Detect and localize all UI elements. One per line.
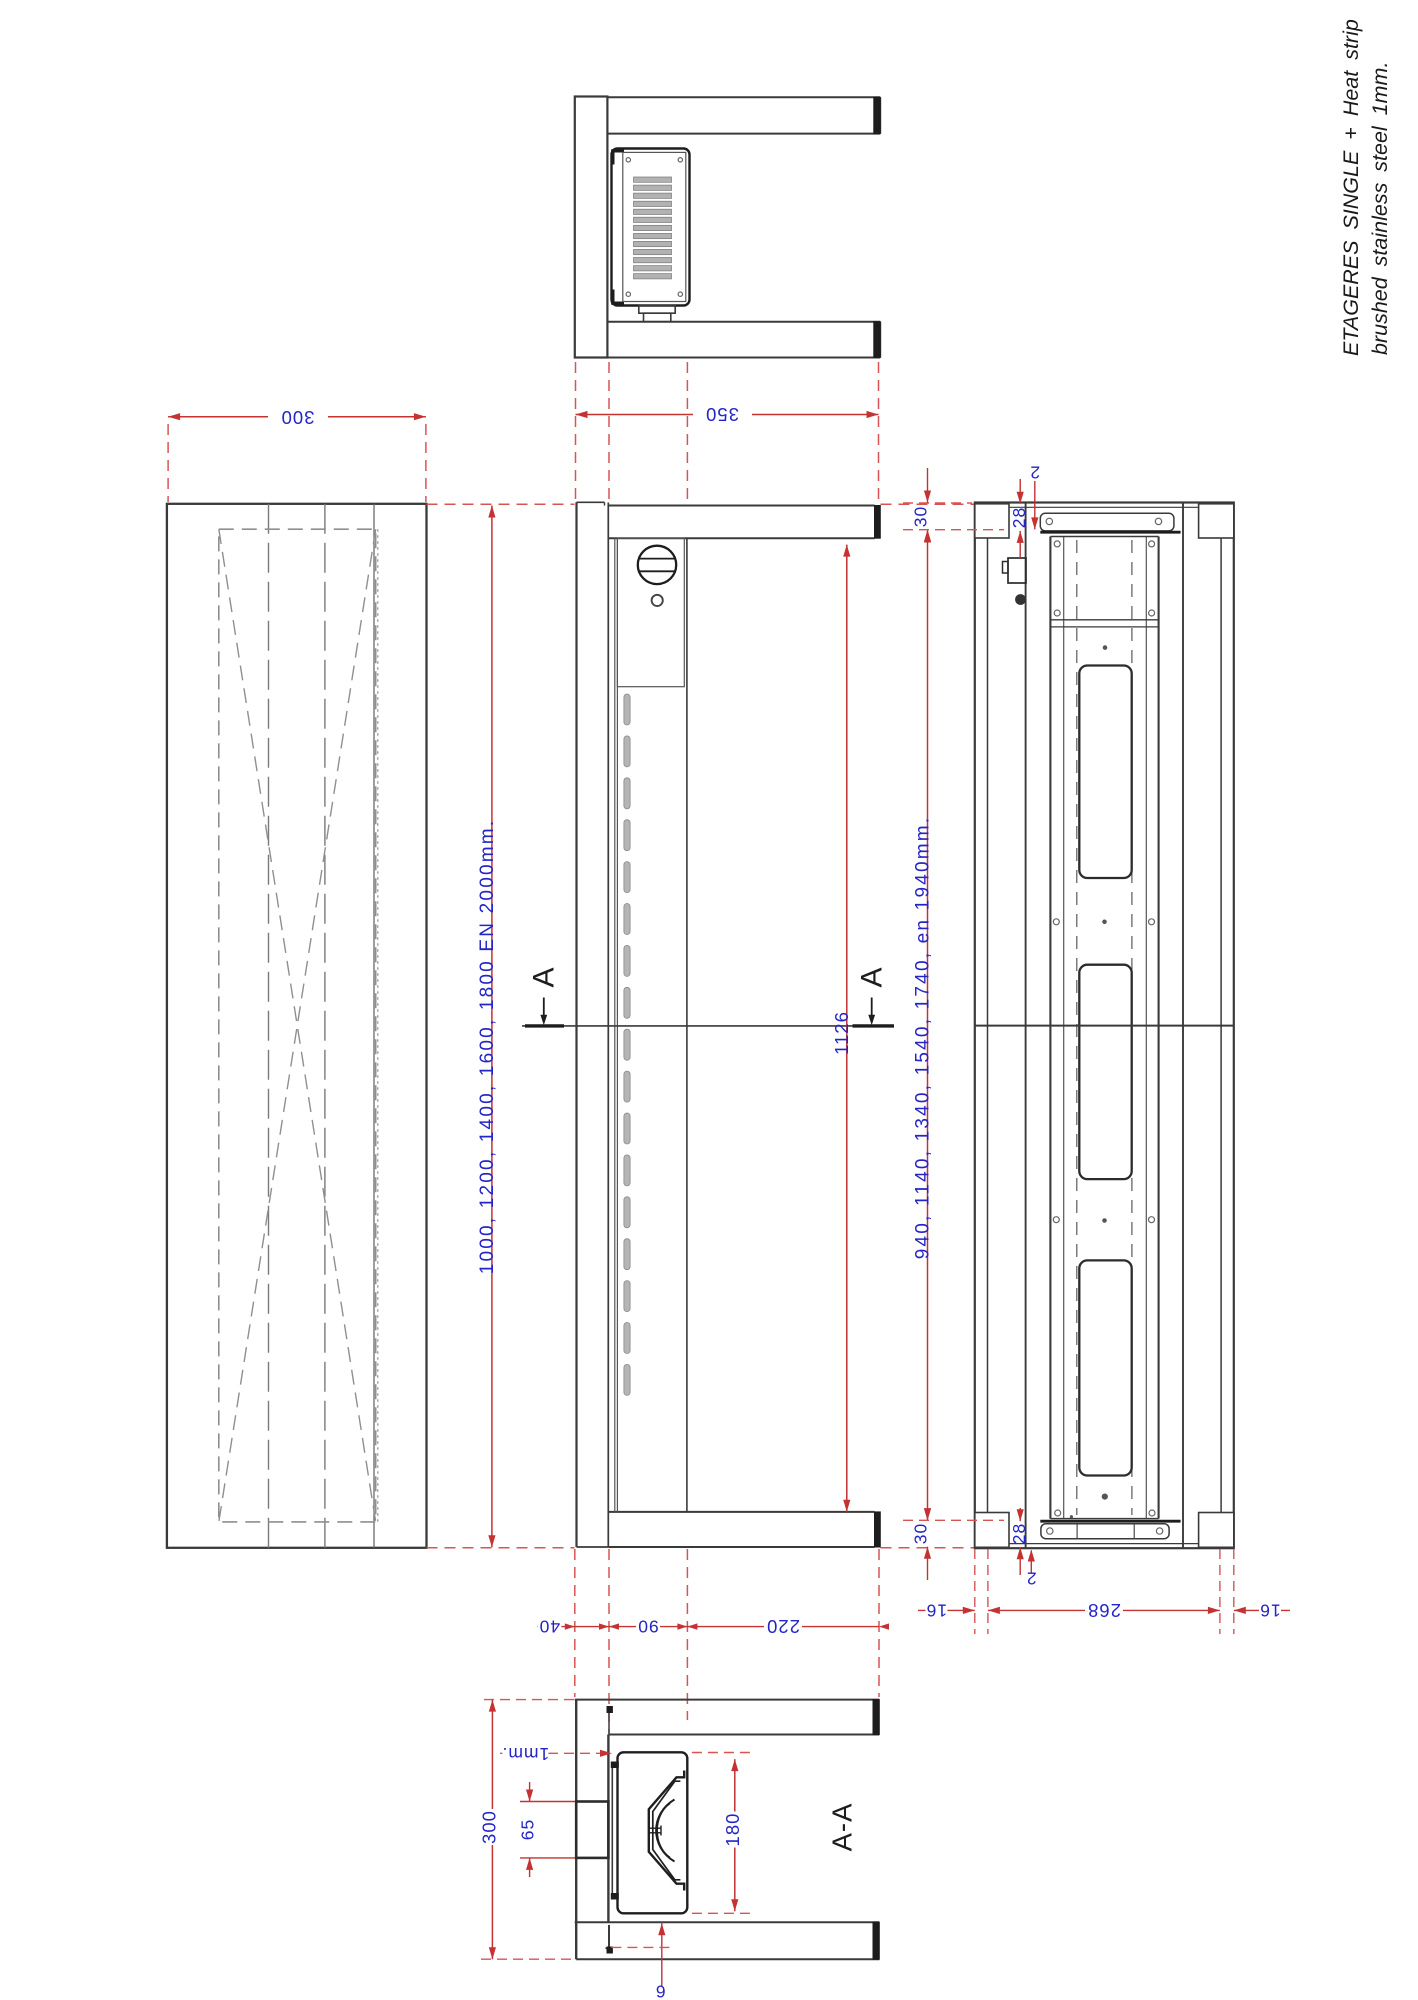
svg-text:1126: 1126: [831, 1011, 852, 1055]
svg-text:30: 30: [911, 506, 931, 527]
svg-text:16: 16: [1259, 1600, 1280, 1620]
svg-text:ETAGERES SINGLE + Heat strip: ETAGERES SINGLE + Heat strip: [1339, 19, 1363, 356]
svg-text:268: 268: [1087, 1600, 1121, 1621]
svg-text:A: A: [856, 966, 889, 987]
svg-text:40: 40: [539, 1617, 560, 1637]
svg-text:180: 180: [722, 1813, 743, 1847]
svg-text:brushed stainless steel 1mm.: brushed stainless steel 1mm.: [1368, 62, 1392, 355]
svg-text:A: A: [528, 966, 561, 987]
svg-text:300: 300: [281, 407, 315, 428]
svg-text:6: 6: [655, 1982, 666, 2000]
svg-text:2: 2: [1029, 463, 1040, 483]
svg-text:1mm.: 1mm.: [502, 1744, 550, 1764]
svg-text:1000, 1200, 1400, 1600, 1800 E: 1000, 1200, 1400, 1600, 1800 EN 2000mm.: [477, 819, 498, 1275]
svg-text:300: 300: [479, 1810, 500, 1844]
svg-text:28: 28: [1009, 507, 1029, 528]
svg-text:16: 16: [926, 1600, 947, 1620]
svg-text:A-A: A-A: [827, 1803, 858, 1852]
svg-text:350: 350: [705, 404, 739, 425]
svg-text:940, 1140, 1340, 1540, 1740, e: 940, 1140, 1340, 1540, 1740, en 1940mm.: [913, 816, 934, 1260]
svg-text:2: 2: [1026, 1569, 1037, 1589]
svg-text:220: 220: [766, 1616, 800, 1637]
svg-text:30: 30: [911, 1523, 931, 1544]
svg-text:90: 90: [637, 1617, 658, 1637]
svg-text:65: 65: [518, 1819, 538, 1840]
svg-text:28: 28: [1009, 1523, 1029, 1544]
